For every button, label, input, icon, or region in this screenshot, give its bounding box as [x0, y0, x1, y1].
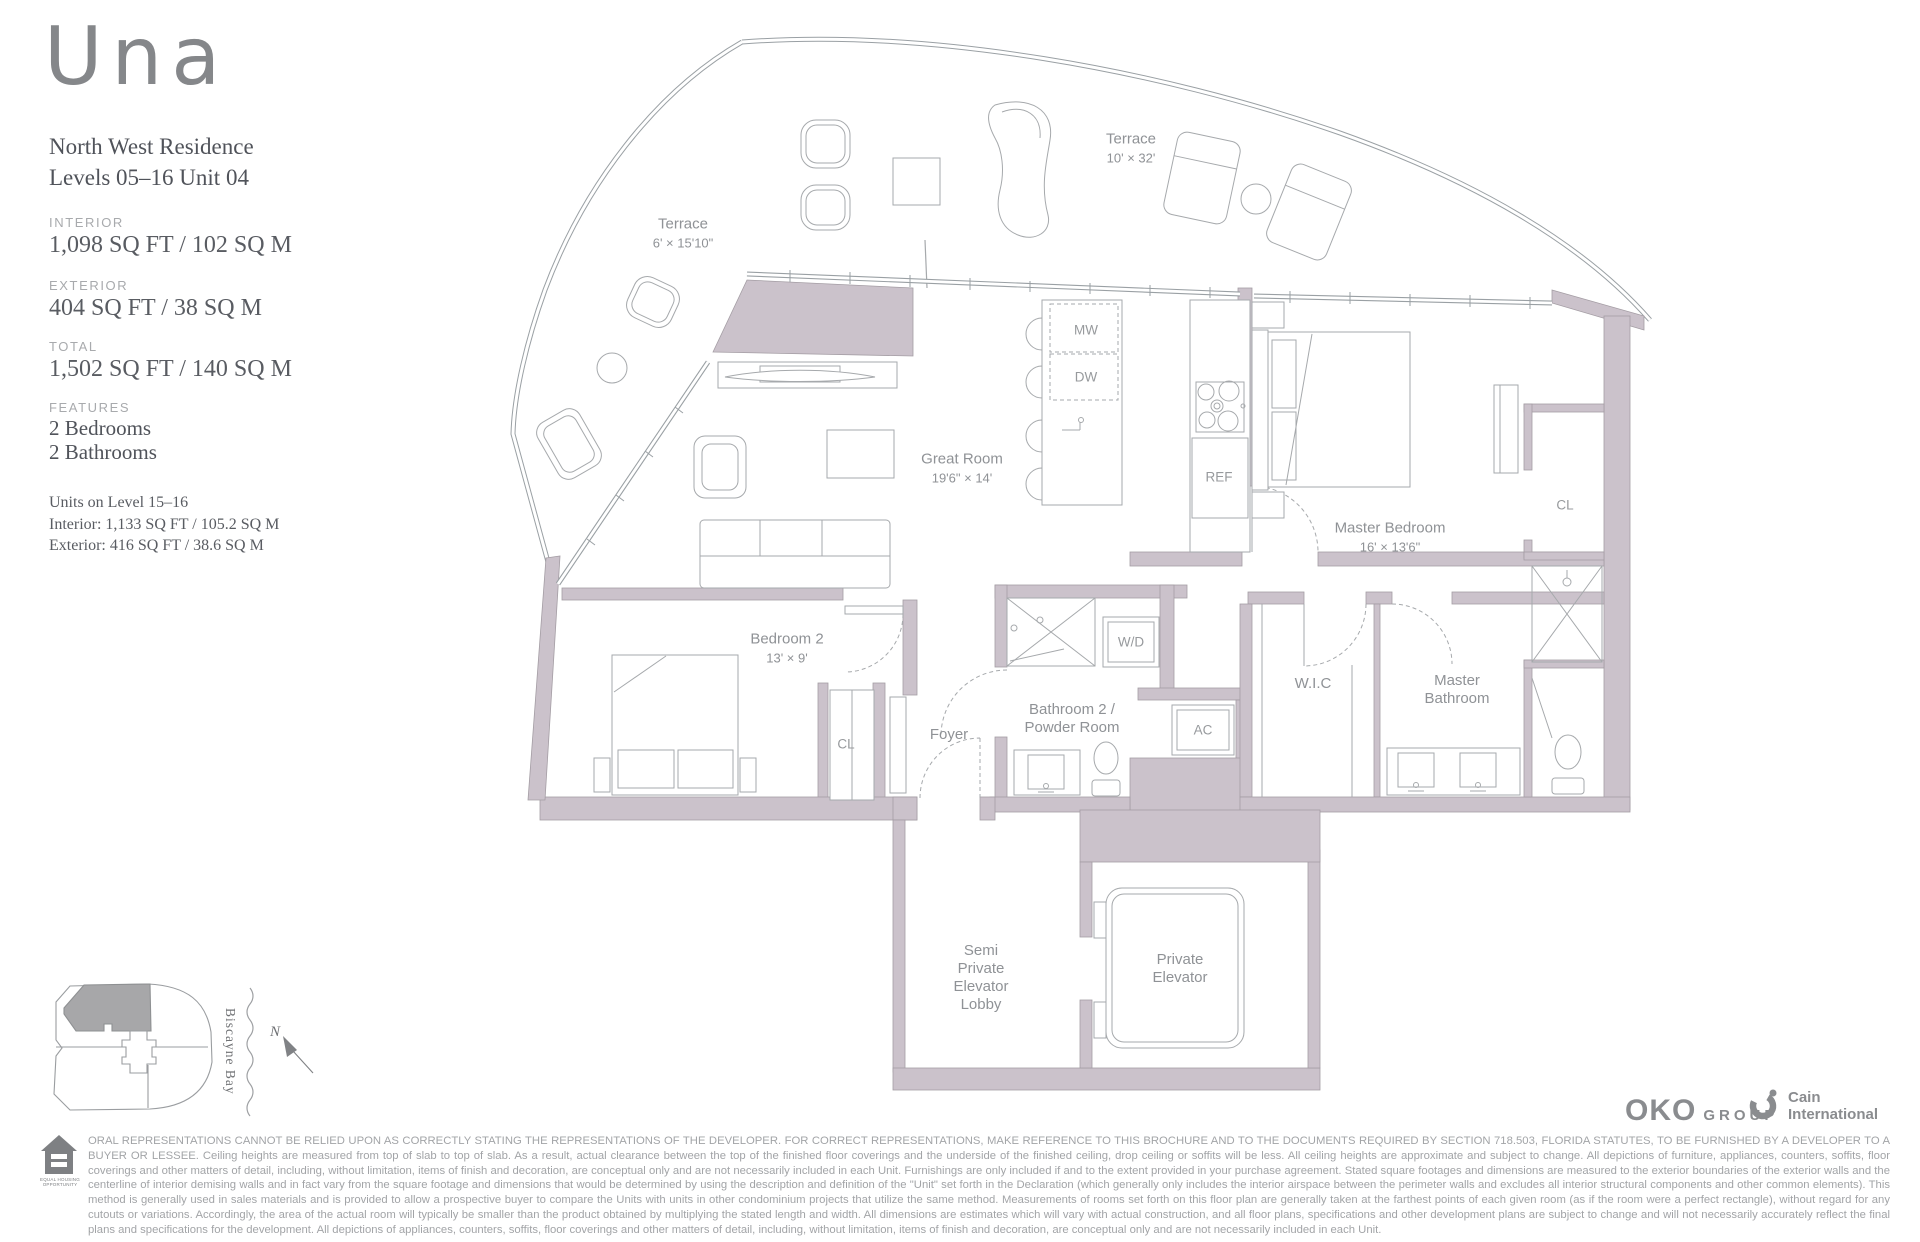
legal-disclaimer: ORAL REPRESENTATIONS CANNOT BE RELIED UP… [88, 1134, 1890, 1238]
room-label-bathroom-2: Bathroom 2 / Powder Room [1024, 701, 1119, 737]
feature-bedrooms: 2 Bedrooms [49, 416, 151, 441]
feature-bathrooms: 2 Bathrooms [49, 440, 157, 465]
master-bedroom-furniture [1252, 302, 1518, 518]
washer-dryer-label: W/D [1116, 635, 1146, 650]
equal-housing-icon [41, 1135, 77, 1174]
brand-logo: Una [44, 10, 229, 103]
great-room-furniture [694, 362, 897, 588]
refrigerator-label: REF [1206, 470, 1233, 485]
level-note: Units on Level 15–16 Interior: 1,133 SQ … [49, 492, 279, 557]
closet-label-master: CL [1556, 498, 1573, 513]
room-label-semi-private-lobby: Semi Private Elevator Lobby [953, 942, 1008, 1014]
cain-logo-line2: International [1788, 1107, 1878, 1124]
room-label-private-elevator: Private Elevator [1152, 951, 1207, 987]
siteplan-drawing [54, 984, 313, 1116]
floorplan-drawing [0, 0, 1920, 1242]
exterior-value: 404 SQ FT / 38 SQ M [49, 295, 262, 322]
total-value: 1,502 SQ FT / 140 SQ M [49, 356, 292, 383]
microwave-label: MW [1074, 323, 1098, 338]
cain-logo-line1: Cain [1788, 1090, 1878, 1107]
siteplan-unit-highlight [64, 984, 151, 1031]
residence-title: North West Residence Levels 05–16 Unit 0… [49, 131, 254, 193]
residence-name: North West Residence [49, 131, 254, 162]
total-label: TOTAL [49, 339, 98, 354]
room-label-master-bedroom: Master Bedroom 16' × 13'6" [1335, 520, 1446, 557]
biscayne-bay-label: Biscayne Bay [222, 1008, 238, 1095]
room-label-bedroom-2: Bedroom 2 13' × 9' [750, 631, 823, 668]
exterior-label: EXTERIOR [49, 278, 128, 293]
interior-value: 1,098 SQ FT / 102 SQ M [49, 232, 292, 259]
room-label-wic: W.I.C [1295, 675, 1332, 693]
room-label-terrace-left: Terrace 6' × 15'10" [653, 216, 714, 253]
north-label: N [270, 1024, 280, 1041]
closet-label-bedroom-2: CL [837, 737, 854, 752]
level-note-interior: Interior: 1,133 SQ FT / 105.2 SQ M [49, 514, 279, 536]
ac-label: AC [1192, 723, 1215, 738]
level-note-title: Units on Level 15–16 [49, 492, 279, 514]
oko-group-text: GROUP [1703, 1107, 1778, 1124]
level-note-exterior: Exterior: 416 SQ FT / 38.6 SQ M [49, 535, 279, 557]
room-label-foyer: Foyer [930, 726, 968, 744]
equal-housing-caption: EQUAL HOUSING OPPORTUNITY [36, 1177, 84, 1187]
residence-levels: Levels 05–16 Unit 04 [49, 162, 254, 193]
cain-international-logo: Cain International [1788, 1090, 1878, 1123]
dishwasher-label: DW [1075, 370, 1098, 385]
oko-group-logo: OKO GROUP [1625, 1094, 1778, 1128]
kitchen-fixtures [1026, 300, 1250, 552]
features-label: FEATURES [49, 400, 130, 415]
north-arrow [283, 1036, 313, 1073]
room-label-master-bathroom: Master Bathroom [1424, 672, 1489, 708]
room-label-great-room: Great Room 19'6" × 14' [921, 451, 1003, 488]
interior-label: INTERIOR [49, 215, 124, 230]
bay-wave [247, 988, 253, 1116]
oko-logo-text: OKO [1625, 1094, 1696, 1128]
bedroom-2-furniture [594, 655, 906, 800]
room-label-terrace-right: Terrace 10' × 32' [1106, 131, 1156, 168]
